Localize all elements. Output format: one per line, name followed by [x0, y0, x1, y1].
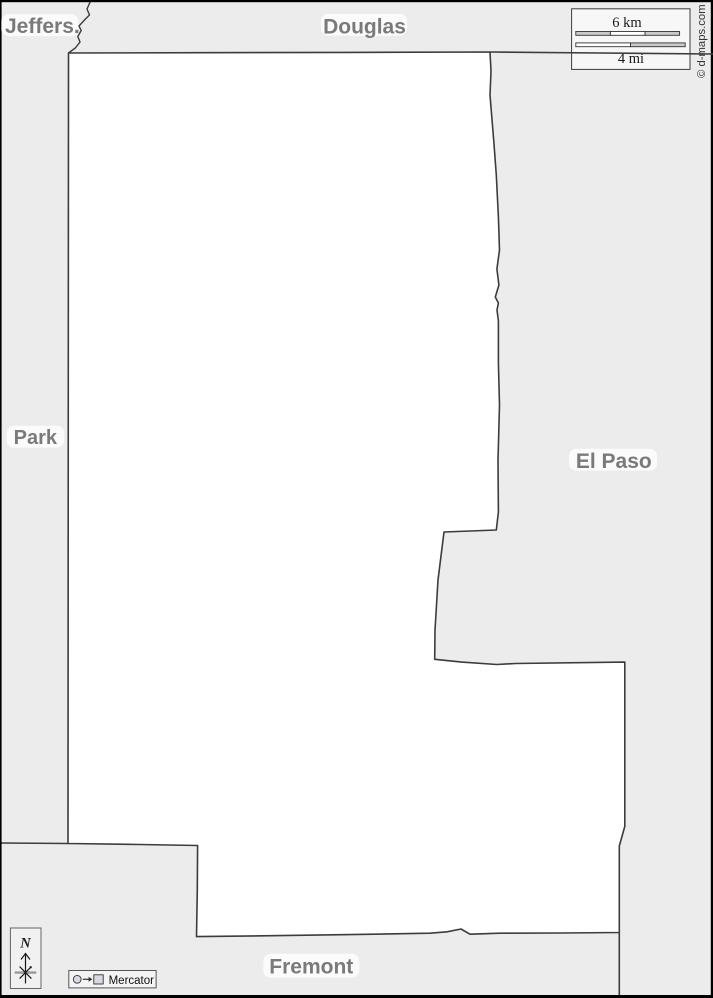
svg-text:Douglas: Douglas: [323, 16, 406, 39]
svg-text:Park: Park: [14, 427, 58, 449]
svg-text:© d-maps.com: © d-maps.com: [696, 4, 708, 78]
svg-text:El Paso: El Paso: [576, 450, 652, 473]
svg-text:6 km: 6 km: [612, 15, 642, 31]
svg-text:Jeffers.: Jeffers.: [5, 15, 80, 38]
svg-text:Mercator: Mercator: [109, 975, 155, 987]
svg-text:N: N: [19, 936, 31, 952]
svg-text:Fremont: Fremont: [269, 956, 353, 979]
